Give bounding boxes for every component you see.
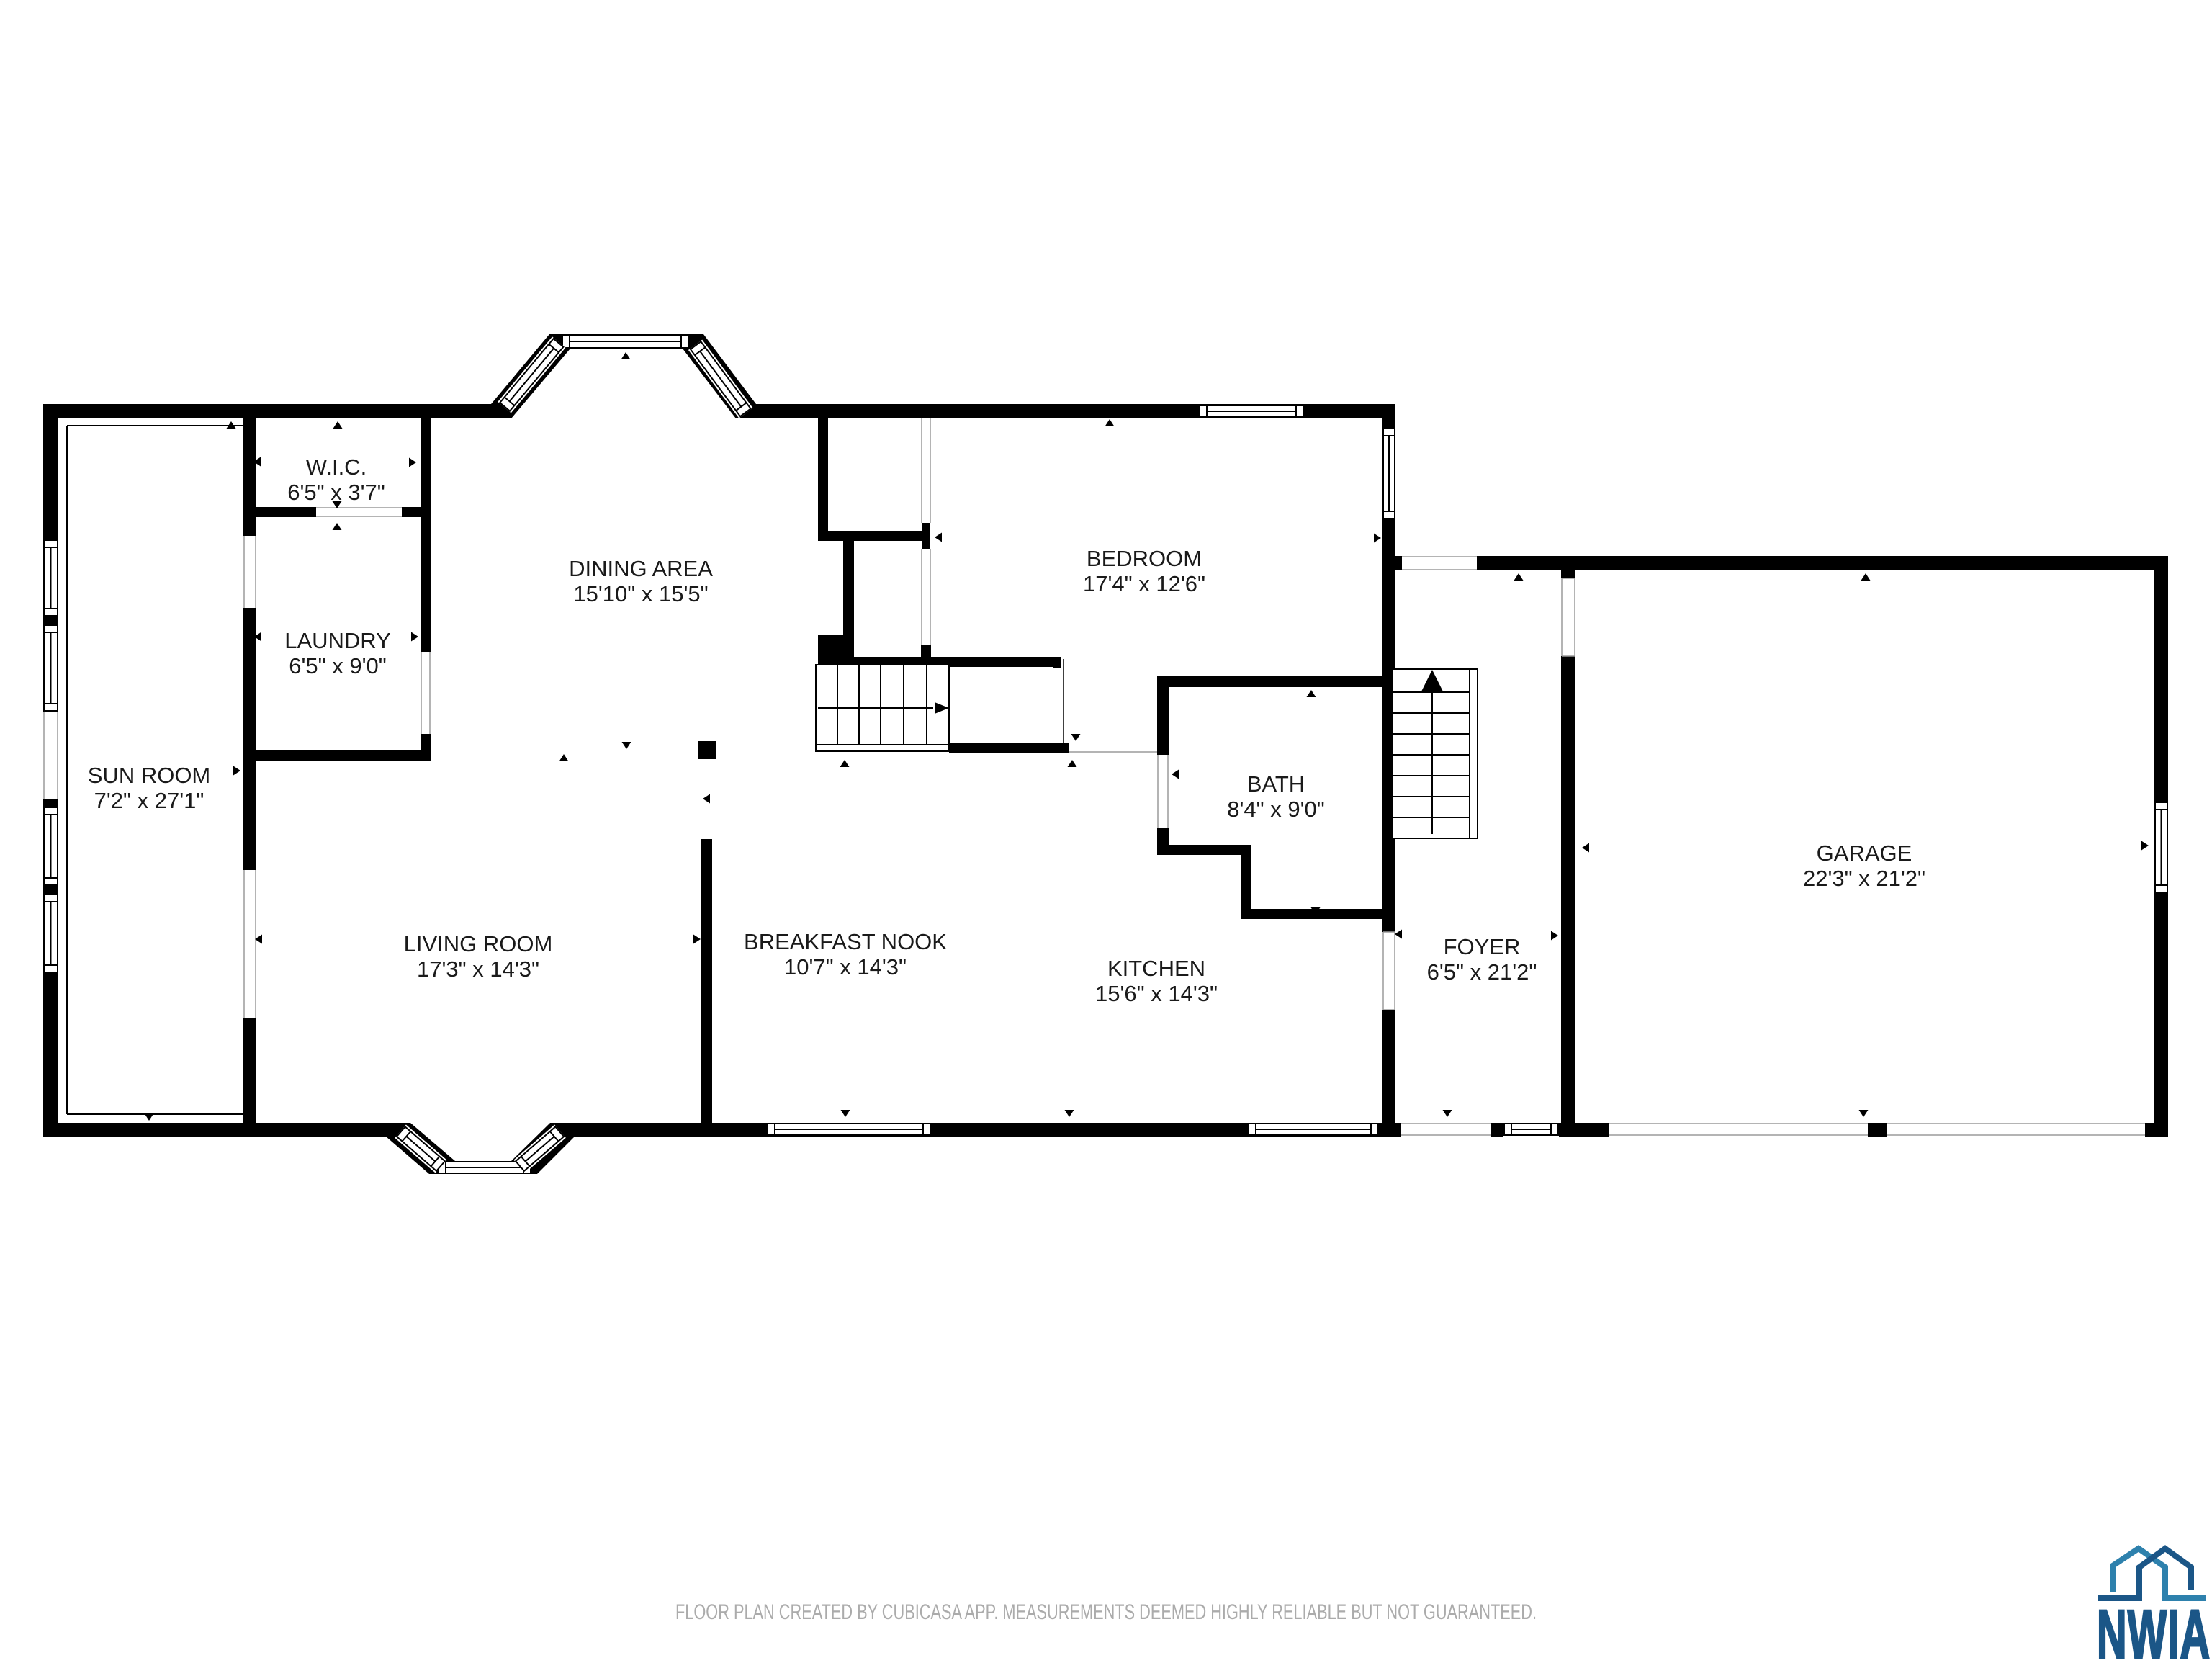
svg-text:W.I.C.: W.I.C. xyxy=(306,454,367,480)
svg-text:6'5" x 3'7": 6'5" x 3'7" xyxy=(287,480,385,505)
svg-text:BATH: BATH xyxy=(1247,771,1305,797)
svg-text:6'5" x 9'0": 6'5" x 9'0" xyxy=(289,653,387,678)
svg-text:DINING AREA: DINING AREA xyxy=(569,556,713,581)
svg-text:22'3" x 21'2": 22'3" x 21'2" xyxy=(1803,866,1925,891)
svg-text:GARAGE: GARAGE xyxy=(1817,841,1912,866)
svg-text:10'7" x 14'3": 10'7" x 14'3" xyxy=(784,954,907,980)
svg-text:8'4" x 9'0": 8'4" x 9'0" xyxy=(1227,797,1325,822)
svg-text:6'5" x 21'2": 6'5" x 21'2" xyxy=(1427,959,1537,985)
svg-text:SUN ROOM: SUN ROOM xyxy=(88,763,211,788)
svg-text:BREAKFAST NOOK: BREAKFAST NOOK xyxy=(744,929,947,954)
svg-text:15'10" x 15'5": 15'10" x 15'5" xyxy=(573,581,708,606)
svg-text:LIVING ROOM: LIVING ROOM xyxy=(404,931,553,956)
svg-text:FOYER: FOYER xyxy=(1444,934,1521,959)
svg-text:17'3" x 14'3": 17'3" x 14'3" xyxy=(417,956,539,982)
svg-text:KITCHEN: KITCHEN xyxy=(1107,956,1205,981)
svg-text:7'2" x 27'1": 7'2" x 27'1" xyxy=(94,788,204,813)
svg-text:FLOOR PLAN CREATED BY CUBICASA: FLOOR PLAN CREATED BY CUBICASA APP. MEAS… xyxy=(675,1600,1537,1624)
svg-text:NWIA: NWIA xyxy=(2097,1595,2211,1659)
svg-text:17'4" x 12'6": 17'4" x 12'6" xyxy=(1083,571,1205,596)
svg-text:BEDROOM: BEDROOM xyxy=(1087,546,1202,571)
svg-text:LAUNDRY: LAUNDRY xyxy=(284,628,391,653)
svg-text:15'6" x 14'3": 15'6" x 14'3" xyxy=(1095,981,1218,1006)
